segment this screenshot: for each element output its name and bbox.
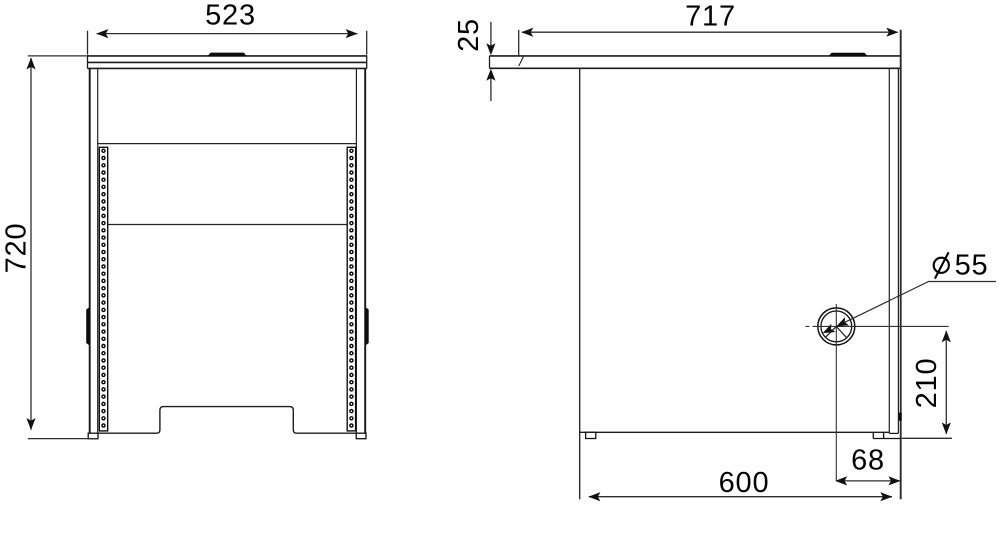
svg-text:717: 717 [685, 1, 736, 33]
svg-text:600: 600 [719, 467, 770, 499]
svg-text:68: 68 [851, 444, 885, 476]
svg-text:720: 720 [1, 223, 33, 274]
svg-text:55: 55 [955, 250, 989, 282]
svg-text:25: 25 [453, 18, 485, 52]
svg-text:210: 210 [911, 358, 943, 409]
svg-text:523: 523 [205, 0, 256, 31]
